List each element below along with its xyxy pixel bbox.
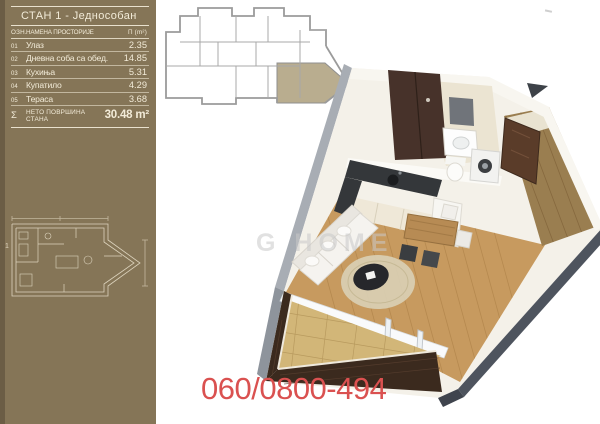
corner-mark bbox=[545, 9, 552, 12]
rug-and-coffee-table bbox=[341, 255, 415, 309]
phone-number: 060/0800-494 bbox=[201, 371, 386, 407]
shower-wardrobe bbox=[388, 70, 447, 160]
dining-chair bbox=[399, 244, 418, 262]
toilet bbox=[447, 163, 463, 181]
dining-chair bbox=[455, 230, 472, 248]
floorplan-sheet: СТАН 1 - Једнособан ОЗН. НАМЕНА ПРОСТОРИ… bbox=[0, 0, 600, 424]
bathroom-mirror bbox=[449, 97, 474, 126]
kitchen-sink bbox=[388, 175, 399, 186]
watermark: G HOME bbox=[256, 229, 393, 258]
dining-chair bbox=[421, 250, 440, 268]
north-arrow-icon bbox=[527, 83, 548, 98]
faucet bbox=[398, 171, 401, 174]
sink-basin bbox=[453, 137, 469, 149]
dining-chair bbox=[441, 204, 458, 220]
shower-head bbox=[426, 98, 430, 102]
apartment-3d-render bbox=[0, 0, 600, 424]
